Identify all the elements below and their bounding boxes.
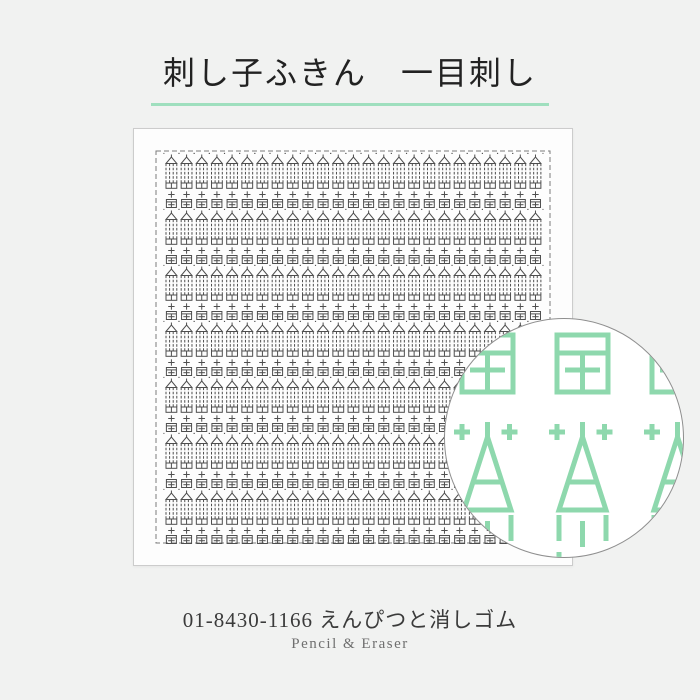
magnifier-pattern-svg (445, 319, 683, 557)
product-name-en: Pencil & Eraser (0, 636, 700, 653)
product-image-page: 刺し子ふきん 一目刺し 01-8430-1166 えんぴつと消しゴム Penci… (0, 0, 700, 700)
product-code: 01-8430-1166 (183, 608, 313, 632)
detail-magnifier-circle (444, 318, 684, 558)
header: 刺し子ふきん 一目刺し (0, 48, 700, 106)
page-title: 刺し子ふきん 一目刺し (151, 48, 549, 106)
product-code-line: 01-8430-1166 えんぴつと消しゴム (0, 604, 700, 634)
product-name-jp: えんぴつと消しゴム (319, 608, 517, 632)
